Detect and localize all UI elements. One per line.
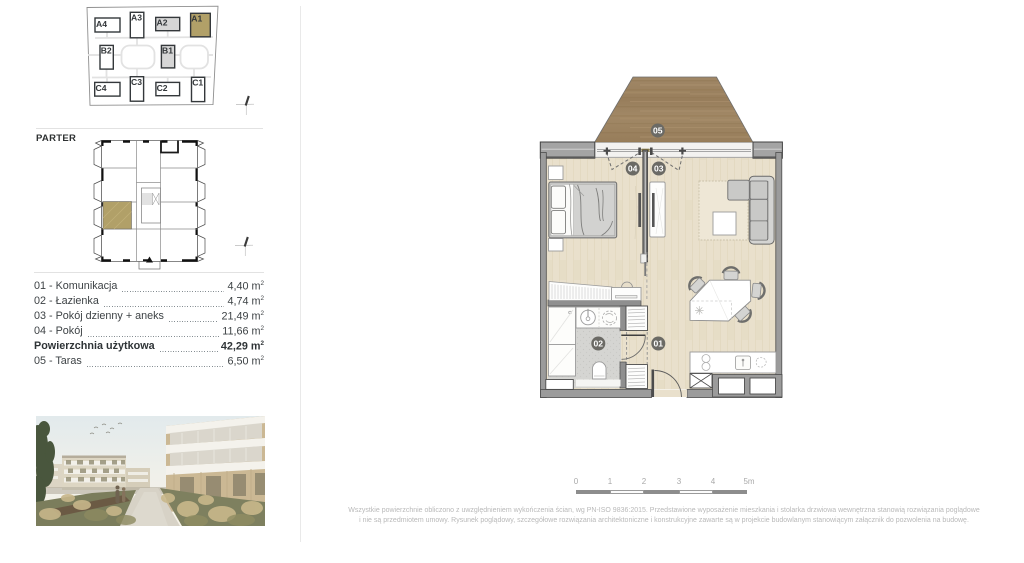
svg-text:05: 05 (653, 126, 663, 136)
svg-text:03: 03 (654, 164, 664, 174)
svg-text:01: 01 (654, 339, 664, 349)
svg-text:C4: C4 (96, 83, 107, 93)
svg-text:B2: B2 (101, 45, 112, 55)
svg-text:A2: A2 (157, 18, 168, 28)
svg-text:04: 04 (628, 164, 638, 174)
svg-text:C2: C2 (157, 83, 168, 93)
svg-text:02: 02 (594, 339, 604, 349)
svg-text:A4: A4 (96, 19, 107, 29)
svg-text:A1: A1 (191, 13, 202, 23)
svg-text:A3: A3 (131, 12, 142, 22)
svg-text:B1: B1 (162, 45, 173, 55)
svg-text:C1: C1 (192, 78, 203, 88)
svg-text:C3: C3 (131, 77, 142, 87)
